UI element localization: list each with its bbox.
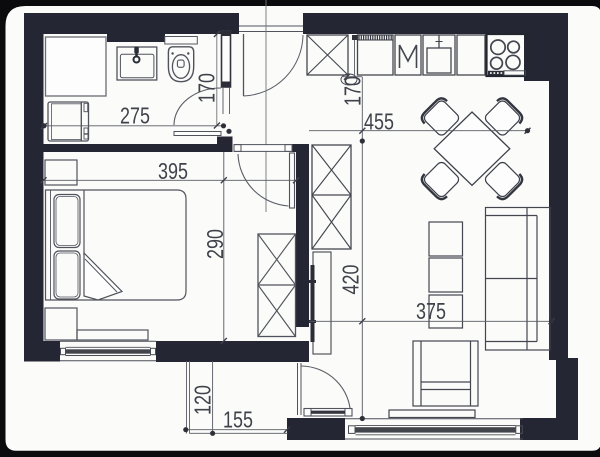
svg-text:420: 420 xyxy=(338,265,364,295)
svg-text:395: 395 xyxy=(158,159,188,185)
svg-text:375: 375 xyxy=(416,299,446,325)
svg-text:275: 275 xyxy=(120,103,150,129)
svg-text:120: 120 xyxy=(190,385,216,415)
svg-text:170: 170 xyxy=(340,76,366,106)
svg-text:455: 455 xyxy=(364,109,394,135)
svg-text:170: 170 xyxy=(194,73,220,103)
svg-text:155: 155 xyxy=(223,407,253,433)
svg-text:290: 290 xyxy=(203,229,229,259)
